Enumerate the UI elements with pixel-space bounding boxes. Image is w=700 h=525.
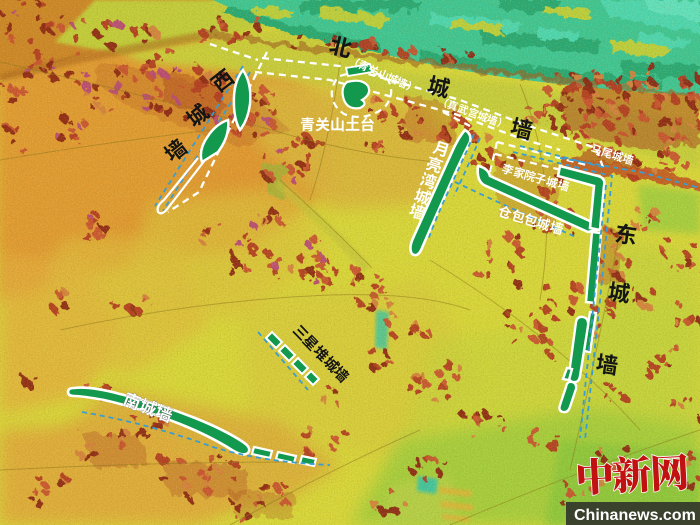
svg-text:Chinanews.com: Chinanews.com [574, 507, 696, 524]
